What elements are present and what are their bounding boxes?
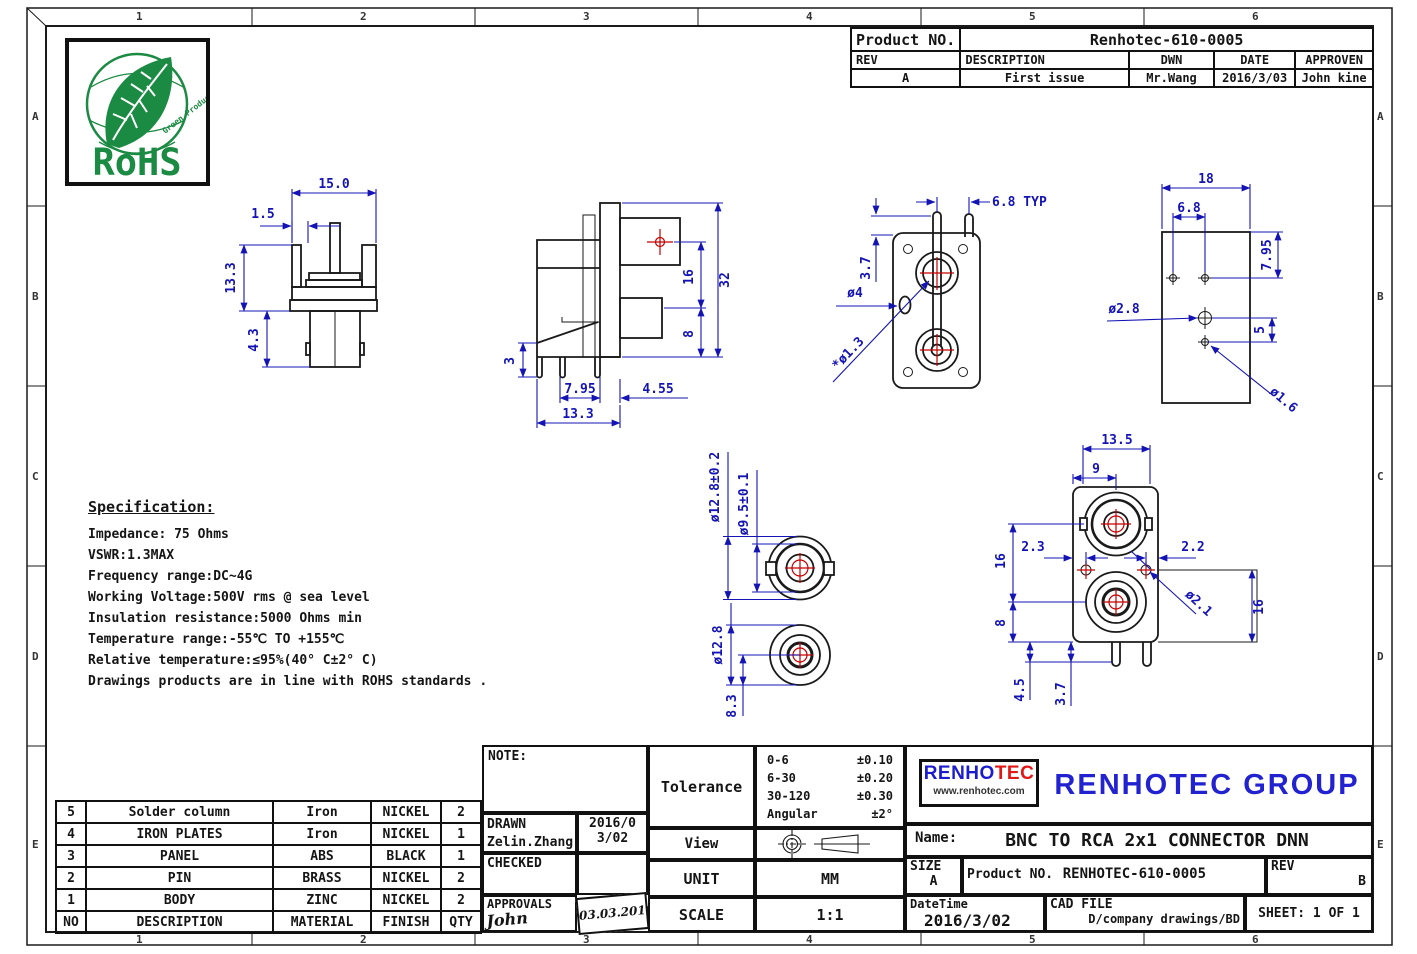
dim-label: ø2.8 (1108, 302, 1139, 317)
spec-line: Working Voltage:500V rms @ sea level (88, 587, 487, 608)
bom-cell: 2 (441, 867, 481, 889)
note-cell: NOTE: (482, 745, 648, 813)
zone-col: 3 (583, 10, 590, 23)
dim-label: 2.2 (1181, 540, 1204, 555)
spec-line: Impedance: 75 Ohms (88, 524, 487, 545)
view-label-cell: View (648, 828, 755, 860)
cad-file-cell: CAD FILE D/company drawings/BD (1045, 895, 1245, 932)
dim-label: 4.5 (1013, 678, 1028, 701)
bom-table: 5 Solder column Iron NICKEL 2 4 IRON PLA… (55, 800, 482, 934)
dim-label: 7.95 (564, 382, 595, 397)
product-no-value: RENHOTEC-610-0005 (1063, 866, 1206, 882)
dim-label: ø12.8 (711, 625, 726, 664)
product-name-cell: Name: BNC TO RCA 2x1 CONNECTOR DNN (905, 824, 1373, 857)
drawn-cell: DRAWN Zelin.Zhang (482, 813, 577, 853)
tolerance-values-cell: 0-6±0.10 6-30±0.20 30-120±0.30 Angular±2… (755, 745, 905, 828)
zone-row: C (32, 470, 39, 483)
dwn-header: DWN (1129, 51, 1214, 69)
bom-cell: BRASS (273, 867, 371, 889)
rev-header: REV (851, 51, 960, 69)
company-logo: RENHOTEC www.renhotec.com (919, 759, 1039, 807)
rohs-title: RoHS (92, 141, 181, 182)
dim-label: ø4 (847, 286, 863, 301)
dim-label: 4.55 (642, 382, 673, 397)
zone-col: 5 (1029, 10, 1036, 23)
bom-header: MATERIAL (273, 911, 371, 933)
dim-label: ø12.8±0.2 (708, 452, 723, 522)
dim-label: 13.5 (1101, 433, 1132, 448)
bom-cell: 2 (441, 801, 481, 823)
tolerance-value: ±0.30 (857, 787, 893, 805)
bom-cell: PANEL (86, 845, 273, 867)
dim-label: 13.3 (224, 262, 239, 293)
bom-header: QTY (441, 911, 481, 933)
zone-row: D (1377, 650, 1384, 663)
zone-row: A (1377, 110, 1384, 123)
dim-label: *ø1.3 (829, 334, 867, 373)
bom-cell: NICKEL (371, 801, 441, 823)
name-label: Name: (915, 830, 957, 846)
unit-value: MM (821, 870, 839, 888)
company-group-name: RENHOTEC GROUP (1047, 769, 1367, 802)
drawn-label: DRAWN (487, 816, 572, 834)
rev-label: REV (1271, 859, 1368, 874)
drawn-date-cell: 2016/03/02 (577, 813, 648, 853)
title-block: NOTE: DRAWN Zelin.Zhang 2016/03/02 CHECK… (482, 745, 1373, 932)
scale-label-cell: SCALE (648, 897, 755, 932)
bom-cell: BLACK (371, 845, 441, 867)
bom-header: DESCRIPTION (86, 911, 273, 933)
table-row: 5 Solder column Iron NICKEL 2 (56, 801, 481, 823)
view-rca-face: ø12.8 8.3 (711, 603, 830, 718)
zone-col: 6 (1252, 933, 1259, 946)
drawn-name: Zelin.Zhang (487, 834, 572, 852)
approvals-date-cell: 03.03.2016 (576, 892, 650, 935)
checked-cell: CHECKED (482, 853, 577, 895)
product-no-label: Product NO. (967, 867, 1053, 882)
note-label: NOTE: (488, 749, 527, 764)
zone-col: 3 (583, 933, 590, 946)
dwn-value: Mr.Wang (1129, 69, 1214, 87)
bom-cell: 1 (441, 845, 481, 867)
dim-label: 2.3 (1021, 540, 1044, 555)
bom-cell: Iron (273, 823, 371, 845)
datetime-value: 2016/3/02 (910, 911, 1040, 930)
table-row: NO DESCRIPTION MATERIAL FINISH QTY (56, 911, 481, 933)
view-label: View (685, 836, 719, 852)
bom-cell: NICKEL (371, 889, 441, 911)
dim-label: 16 (994, 553, 1009, 569)
bom-cell: 1 (56, 889, 86, 911)
tolerance-value: ±0.20 (857, 769, 893, 787)
product-no-label: Product NO. (851, 28, 960, 51)
spec-line: Drawings products are in line with ROHS … (88, 671, 487, 692)
bom-cell: 5 (56, 801, 86, 823)
specification-block: Specification: Impedance: 75 Ohms VSWR:1… (88, 497, 487, 692)
description-header: DESCRIPTION (960, 51, 1129, 69)
tolerance-range: 30-120 (767, 787, 810, 805)
tolerance-value: ±2° (871, 805, 893, 823)
rev-cell: REV B (1266, 857, 1373, 895)
rev-value: B (1271, 874, 1368, 889)
specification-title: Specification: (88, 497, 487, 518)
zone-col: 5 (1029, 933, 1036, 946)
tolerance-range: 0-6 (767, 751, 789, 769)
drawn-date: 2016/03/02 (589, 816, 636, 846)
bom-cell: 1 (441, 823, 481, 845)
bom-cell: ZINC (273, 889, 371, 911)
dim-label: 5 (1253, 326, 1268, 334)
dim-label: 3.7 (859, 256, 874, 279)
dim-label: 3 (503, 357, 518, 365)
spec-line: Relative temperature:≤95%(40° C±2° C) (88, 650, 487, 671)
zone-col: 2 (360, 10, 367, 23)
dim-label: 1.5 (251, 207, 274, 222)
sheet-value: SHEET: 1 OF 1 (1258, 906, 1360, 921)
bom-cell: NICKEL (371, 867, 441, 889)
approvals-cell: APPROVALS John Kine (482, 895, 577, 932)
scale-value-cell: 1:1 (755, 897, 905, 932)
dim-label: 4.3 (247, 328, 262, 351)
zone-row: D (32, 650, 39, 663)
view-symbol-cell (755, 828, 905, 860)
tolerance-label: Tolerance (661, 778, 742, 796)
approvals-date: 03.03.2016 (578, 902, 654, 922)
zone-col: 1 (136, 933, 143, 946)
tolerance-range: Angular (767, 805, 818, 823)
table-row: 2 PIN BRASS NICKEL 2 (56, 867, 481, 889)
projection-symbol-icon (770, 830, 890, 858)
spec-line: Temperature range:-55℃ TO +155℃ (88, 629, 487, 650)
cad-file-value: D/company drawings/BD (1050, 912, 1240, 926)
company-header-cell: RENHOTEC www.renhotec.com RENHOTEC GROUP (905, 745, 1373, 824)
approven-header: APPROVEN (1295, 51, 1373, 69)
logo-text-blue: RENHO (924, 763, 995, 784)
tolerance-range: 6-30 (767, 769, 796, 787)
bom-cell: NICKEL (371, 823, 441, 845)
view-footprint: 18 6.8 7.95 5 ø2.8 ø1.6 (1107, 172, 1300, 416)
datetime-label: DateTime (910, 897, 1040, 911)
logo-text-red: TEC (995, 763, 1035, 784)
cad-file-label: CAD FILE (1050, 897, 1240, 912)
dim-label: 32 (718, 272, 733, 288)
bom-cell: 2 (441, 889, 481, 911)
checked-label: CHECKED (487, 856, 542, 871)
product-name-value: BNC TO RCA 2x1 CONNECTOR DNN (967, 830, 1347, 851)
dim-label: 6.8 TYP (992, 195, 1047, 210)
rohs-logo-art: Green Product RoHS (69, 42, 206, 182)
zone-row: B (32, 290, 39, 303)
dim-label: ø9.5±0.1 (737, 473, 752, 536)
unit-value-cell: MM (755, 860, 905, 897)
dim-label: ø1.6 (1266, 385, 1300, 417)
rohs-logo: Green Product RoHS (65, 38, 210, 186)
view-side: 15.0 1.5 13.3 4.3 (224, 177, 377, 367)
datetime-cell: DateTime 2016/3/02 (905, 895, 1045, 932)
bom-header: FINISH (371, 911, 441, 933)
bom-cell: PIN (86, 867, 273, 889)
dim-label: 8 (682, 330, 697, 338)
bom-cell: IRON PLATES (86, 823, 273, 845)
size-cell: SIZE A (905, 857, 962, 895)
table-row: 3 PANEL ABS BLACK 1 (56, 845, 481, 867)
date-value: 2016/3/03 (1214, 69, 1295, 87)
approven-value: John kine (1295, 69, 1373, 87)
unit-label: UNIT (683, 870, 719, 888)
dim-label: 3.7 (1054, 682, 1069, 705)
dim-label: 8.3 (725, 694, 740, 717)
revision-table: Product NO. Renhotec-610-0005 REV DESCRI… (850, 27, 1374, 88)
spec-line: Frequency range:DC~4G (88, 566, 487, 587)
spec-line: VSWR:1.3MAX (88, 545, 487, 566)
bom-cell: Solder column (86, 801, 273, 823)
bom-header: NO (56, 911, 86, 933)
bom-cell: 3 (56, 845, 86, 867)
spec-line: Insulation resistance:5000 Ohms min (88, 608, 487, 629)
dim-label: 16 (1252, 599, 1267, 615)
zone-row: E (1377, 838, 1384, 851)
dim-label: ø2.1 (1182, 587, 1215, 619)
bom-cell: ABS (273, 845, 371, 867)
checked-value-cell (577, 853, 648, 895)
dim-label: 16 (682, 269, 697, 285)
zone-col: 4 (806, 933, 813, 946)
zone-row: E (32, 838, 39, 851)
rev-value: A (851, 69, 960, 87)
unit-label-cell: UNIT (648, 860, 755, 897)
date-header: DATE (1214, 51, 1295, 69)
zone-col: 4 (806, 10, 813, 23)
tolerance-label-cell: Tolerance (648, 745, 755, 828)
product-no-value: Renhotec-610-0005 (960, 28, 1373, 51)
sheet-cell: SHEET: 1 OF 1 (1245, 895, 1373, 932)
dim-label: 15.0 (318, 177, 349, 192)
dim-label: 6.8 (1177, 201, 1201, 216)
bom-cell: Iron (273, 801, 371, 823)
view-back: 6.8 TYP 3.7 ø4 *ø1.3 (829, 195, 1046, 388)
view-front: 13.5 9 2.3 2.2 16 8 16 4.5 3.7 ø2.1 (994, 433, 1267, 706)
dim-label: 9 (1092, 462, 1100, 477)
engineering-drawing-sheet: .ln{stroke:#1a1a1a;stroke-width:1.8;fill… (0, 0, 1417, 954)
zone-col: 6 (1252, 10, 1259, 23)
tolerance-value: ±0.10 (857, 751, 893, 769)
bom-cell: BODY (86, 889, 273, 911)
zone-row: C (1377, 470, 1384, 483)
product-no-cell: Product NO. RENHOTEC-610-0005 (962, 857, 1266, 895)
description-value: First issue (960, 69, 1129, 87)
dim-label: 13.3 (562, 407, 593, 422)
dim-label: 7.95 (1260, 239, 1275, 270)
zone-row: B (1377, 290, 1384, 303)
zone-col: 1 (136, 10, 143, 23)
view-profile: 32 16 8 3 7.95 4.55 13.3 (503, 203, 733, 428)
table-row: 4 IRON PLATES Iron NICKEL 1 (56, 823, 481, 845)
logo-url: www.renhotec.com (922, 786, 1036, 797)
table-row: 1 BODY ZINC NICKEL 2 (56, 889, 481, 911)
zone-col: 2 (360, 933, 367, 946)
zone-row: A (32, 110, 39, 123)
scale-value: 1:1 (816, 906, 843, 924)
dim-label: 8 (994, 619, 1009, 627)
bom-cell: 2 (56, 867, 86, 889)
view-bnc-face: ø12.8±0.2 ø9.5±0.1 (708, 452, 834, 600)
bom-cell: 4 (56, 823, 86, 845)
size-label: SIZE (910, 859, 957, 874)
size-value: A (910, 874, 957, 889)
dim-label: 18 (1198, 172, 1214, 187)
scale-label: SCALE (679, 906, 724, 924)
